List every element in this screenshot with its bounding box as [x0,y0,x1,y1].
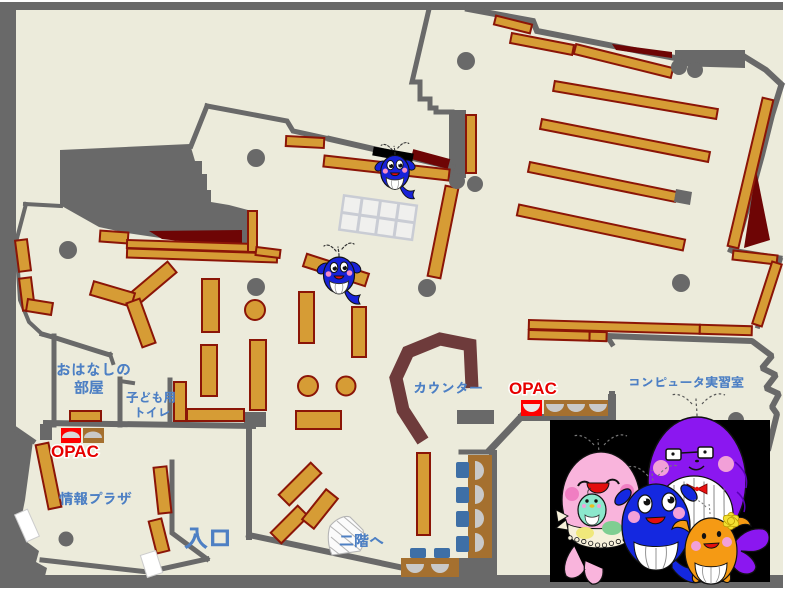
svg-text:OPAC: OPAC [509,379,557,398]
svg-text:OPAC: OPAC [51,442,99,461]
